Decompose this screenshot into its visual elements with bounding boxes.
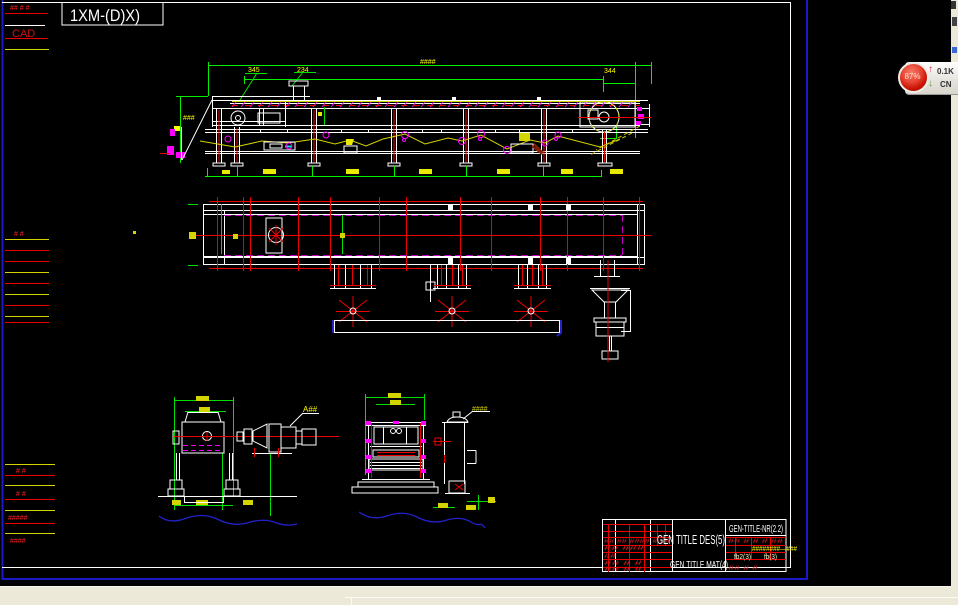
svg-text:fb(3): fb(3) [764,554,777,561]
svg-text:####: #### [420,59,436,66]
svg-text:## # #: ## # # [728,566,759,572]
svg-text:GEN TITLE DES(5): GEN TITLE DES(5) [657,532,725,547]
svg-text:344: 344 [604,68,616,75]
svg-text:# #: # # [16,468,26,475]
svg-text:1XM-(D)X): 1XM-(D)X) [70,6,140,25]
svg-text:########—###: ########—### [752,546,797,553]
svg-text:## # #: ## # # [10,5,30,12]
svg-text:A##: A## [303,405,318,414]
svg-text:## ###: ## ### [604,546,645,552]
svg-text:GEN-TITLE-NR(2.2): GEN-TITLE-NR(2.2) [729,524,783,535]
svg-text:GEN TITLE MAT(4): GEN TITLE MAT(4) [670,560,728,571]
svg-text:#####: ##### [8,515,28,522]
svg-text:###: ### [183,115,195,122]
svg-text:####: #### [10,538,26,545]
svg-text:## # # # ##: ## # # # ## [728,539,784,545]
svg-text:## # #: ## # # [604,567,643,573]
svg-text:# #: # # [16,491,26,498]
svg-text:# #: # # [14,231,24,238]
svg-text:345: 345 [248,67,260,74]
svg-text:fb2(3): fb2(3) [734,554,751,561]
svg-text:##: ## [604,554,617,560]
